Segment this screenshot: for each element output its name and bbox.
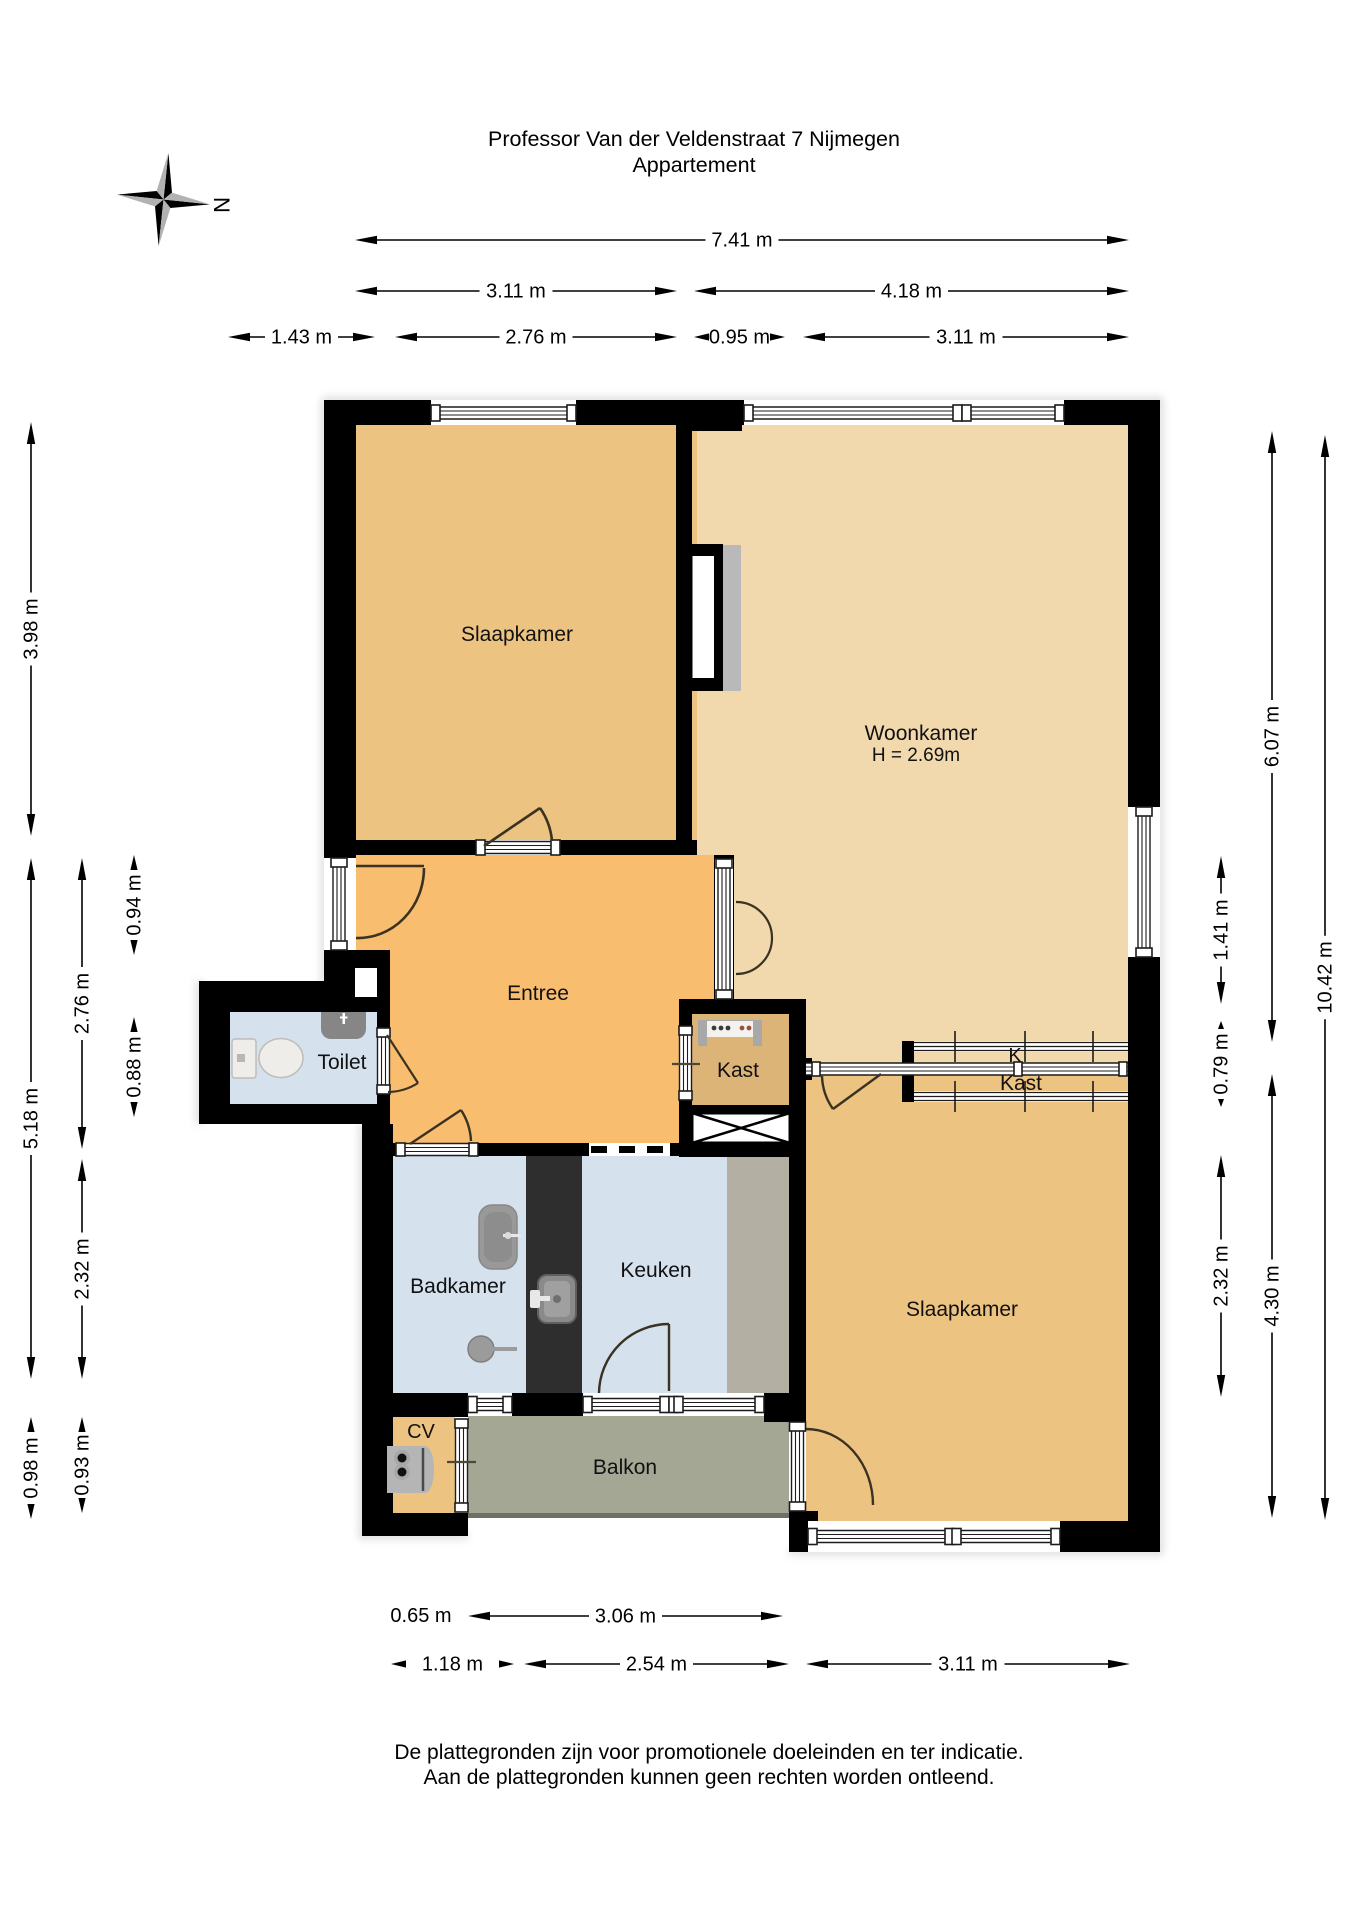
svg-text:2.32 m: 2.32 m (72, 1238, 94, 1299)
svg-text:Appartement: Appartement (632, 153, 755, 177)
svg-text:10.42 m: 10.42 m (1315, 941, 1337, 1013)
svg-text:Slaapkamer: Slaapkamer (906, 1298, 1018, 1321)
svg-text:2.54 m: 2.54 m (626, 1654, 687, 1676)
svg-text:3.11 m: 3.11 m (938, 1654, 998, 1676)
svg-text:3.98 m: 3.98 m (21, 598, 43, 659)
svg-text:1.18 m: 1.18 m (422, 1654, 483, 1676)
svg-text:Kast: Kast (1000, 1072, 1042, 1095)
svg-text:N: N (209, 197, 234, 213)
svg-text:6.07 m: 6.07 m (1262, 706, 1284, 767)
svg-text:2.76 m: 2.76 m (72, 973, 94, 1034)
svg-text:Slaapkamer: Slaapkamer (461, 623, 573, 646)
svg-text:H = 2.69m: H = 2.69m (872, 745, 960, 766)
svg-text:3.11 m: 3.11 m (486, 281, 546, 303)
svg-text:1.43 m: 1.43 m (271, 327, 332, 349)
svg-text:3.06 m: 3.06 m (595, 1606, 656, 1628)
svg-text:Kast: Kast (717, 1059, 759, 1082)
svg-text:5.18 m: 5.18 m (21, 1088, 43, 1149)
svg-text:Entree: Entree (507, 982, 569, 1005)
svg-text:CV: CV (407, 1421, 435, 1443)
svg-text:0.79 m: 0.79 m (1211, 1033, 1233, 1094)
svg-text:0.65 m: 0.65 m (390, 1605, 451, 1627)
svg-text:Badkamer: Badkamer (410, 1275, 506, 1298)
svg-text:2.76 m: 2.76 m (505, 327, 566, 349)
svg-text:7.41 m: 7.41 m (711, 230, 772, 252)
svg-text:0.94 m: 0.94 m (124, 874, 146, 935)
svg-text:4.18 m: 4.18 m (881, 281, 942, 303)
svg-text:4.30 m: 4.30 m (1262, 1265, 1284, 1326)
svg-text:0.93 m: 0.93 m (72, 1434, 94, 1495)
svg-text:Professor Van der Veldenstraat: Professor Van der Veldenstraat 7 Nijmege… (488, 127, 900, 151)
svg-text:Woonkamer: Woonkamer (865, 722, 978, 745)
svg-text:Toilet: Toilet (317, 1051, 366, 1074)
svg-text:De plattegronden zijn voor pro: De plattegronden zijn voor promotionele … (394, 1741, 1023, 1764)
svg-text:K: K (1008, 1045, 1022, 1067)
svg-text:0.95 m: 0.95 m (709, 327, 770, 349)
svg-text:Aan de plattegronden kunnen ge: Aan de plattegronden kunnen geen rechten… (424, 1766, 995, 1789)
svg-text:0.88 m: 0.88 m (124, 1036, 146, 1097)
svg-text:1.41 m: 1.41 m (1211, 899, 1233, 960)
svg-text:0.98 m: 0.98 m (21, 1437, 43, 1498)
svg-text:3.11 m: 3.11 m (936, 327, 996, 349)
svg-text:2.32 m: 2.32 m (1211, 1245, 1233, 1306)
svg-text:Keuken: Keuken (620, 1259, 691, 1282)
svg-text:Balkon: Balkon (593, 1456, 657, 1479)
